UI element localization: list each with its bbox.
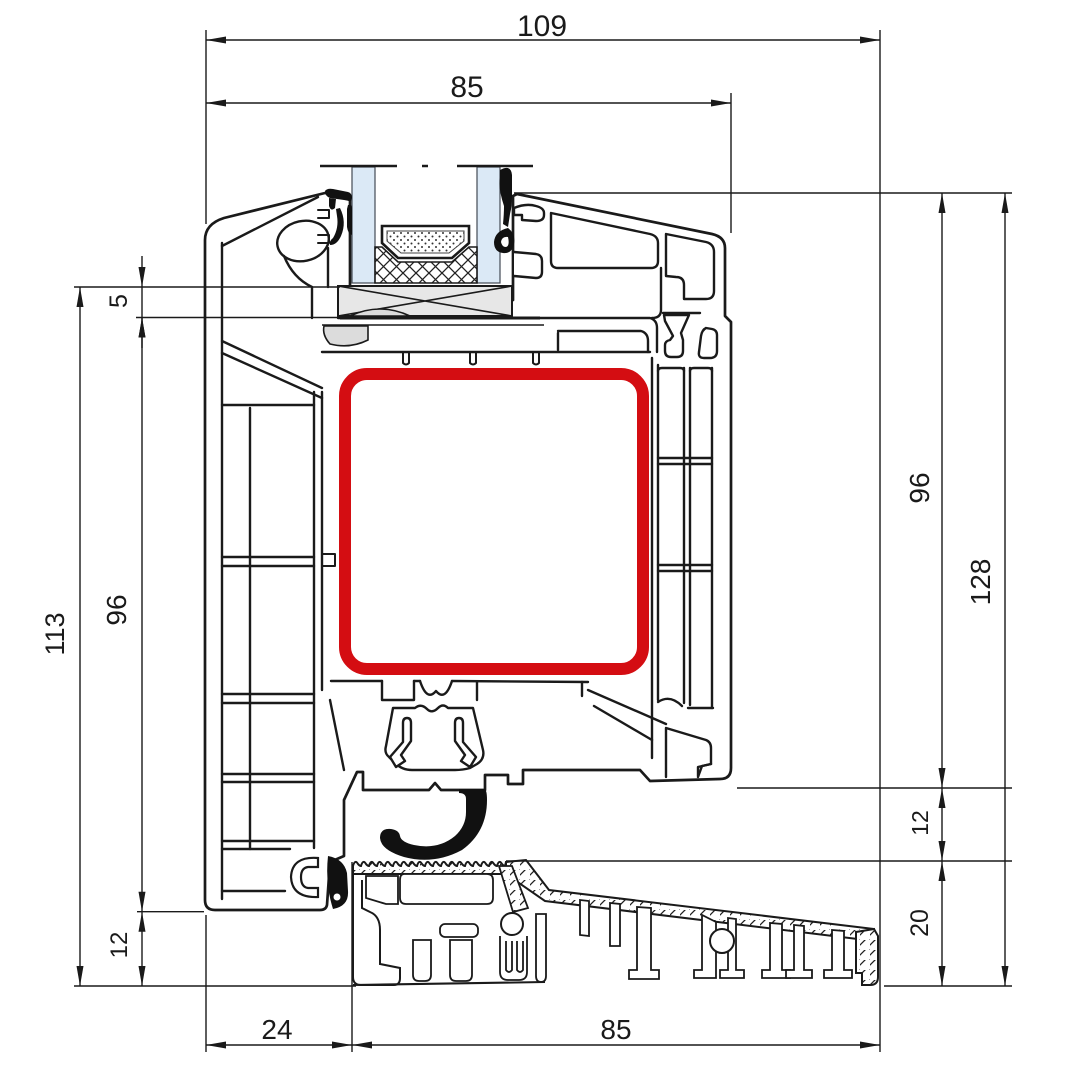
svg-text:85: 85: [600, 1014, 631, 1045]
svg-text:20: 20: [906, 909, 934, 937]
svg-text:109: 109: [517, 10, 567, 43]
svg-text:12: 12: [106, 932, 133, 959]
svg-text:85: 85: [450, 71, 483, 104]
svg-text:96: 96: [101, 594, 132, 625]
svg-text:12: 12: [907, 810, 933, 836]
svg-text:96: 96: [904, 472, 935, 503]
svg-text:5: 5: [105, 294, 133, 308]
svg-text:113: 113: [40, 612, 70, 655]
svg-text:128: 128: [965, 559, 996, 606]
svg-text:24: 24: [261, 1014, 292, 1045]
